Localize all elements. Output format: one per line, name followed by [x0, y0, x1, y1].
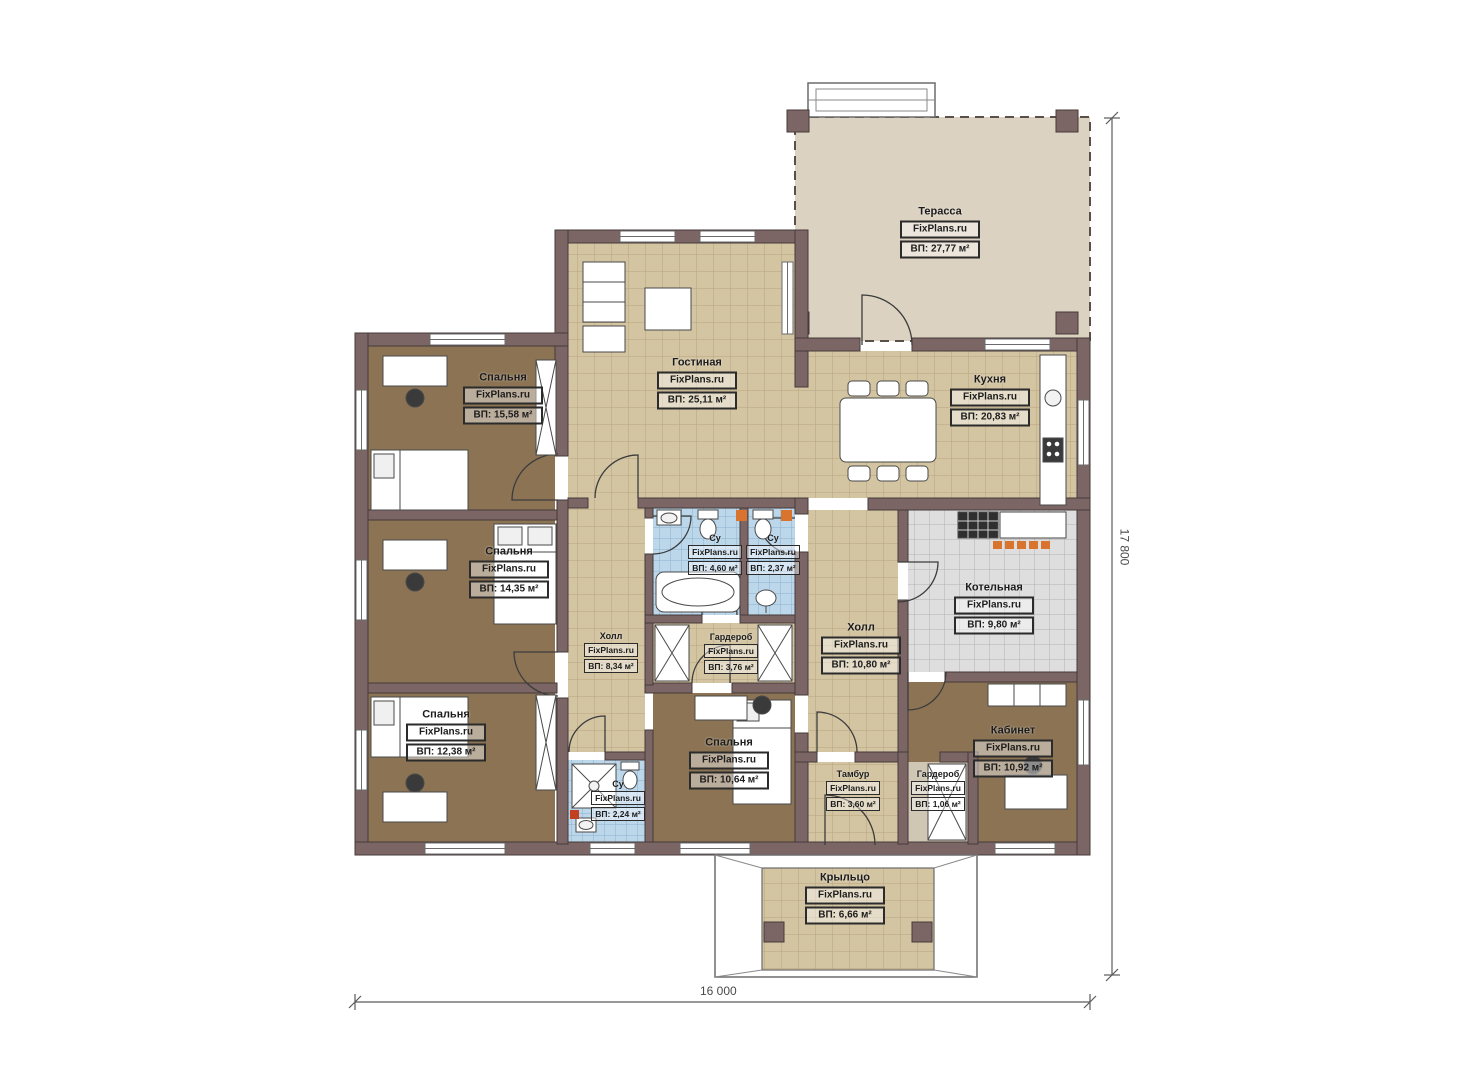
room-area: ВП: 14,35 м² [469, 581, 549, 599]
towel-heater [781, 510, 792, 521]
watermark-label: FixPlans.ru [704, 644, 758, 658]
room-label-terrace: Терасса FixPlans.ru ВП: 27,77 м² [900, 206, 980, 259]
balcony-door [782, 262, 793, 334]
window [995, 843, 1055, 854]
bathtub [656, 572, 740, 612]
room-name: Кабинет [991, 725, 1036, 738]
room-area: ВП: 25,11 м² [657, 392, 737, 410]
room-area: ВП: 4,60 м² [688, 561, 742, 575]
tv-unit [583, 262, 625, 352]
room-area: ВП: 9,80 м² [954, 617, 1034, 635]
room-label-tambour: Тамбур FixPlans.ru ВП: 3,60 м² [826, 769, 880, 811]
watermark-label: FixPlans.ru [826, 781, 880, 795]
watermark-label: FixPlans.ru [973, 740, 1053, 758]
room-label-bathroom-3: Су FixPlans.ru ВП: 2,24 м² [591, 779, 645, 821]
office-shelf [988, 684, 1066, 706]
watermark-label: FixPlans.ru [469, 561, 549, 579]
room-label-office: Кабинет FixPlans.ru ВП: 10,92 м² [973, 725, 1053, 778]
watermark-label: FixPlans.ru [911, 781, 965, 795]
window [985, 339, 1050, 350]
room-label-bathroom-2: Су FixPlans.ru ВП: 2,37 м² [746, 533, 800, 575]
terrace-post [1056, 110, 1078, 132]
room-area: ВП: 8,34 м² [584, 659, 638, 673]
floor-passage [795, 385, 808, 498]
room-name: Спальня [422, 709, 470, 722]
wardrobe [536, 695, 556, 790]
floor-hall-1 [568, 498, 645, 752]
room-area: ВП: 10,64 м² [689, 772, 769, 790]
room-name: Котельная [965, 582, 1023, 595]
window [680, 843, 750, 854]
dimension-height-label: 17 800 [1117, 529, 1131, 566]
room-label-hall-1: Холл FixPlans.ru ВП: 8,34 м² [584, 631, 638, 673]
dining-table [840, 381, 936, 481]
watermark-label: FixPlans.ru [584, 643, 638, 657]
watermark-label: FixPlans.ru [406, 724, 486, 742]
room-name: Су [612, 779, 624, 789]
watermark-label: FixPlans.ru [463, 387, 543, 405]
room-name: Спальня [479, 372, 527, 385]
room-name: Холл [847, 622, 875, 635]
room-area: ВП: 27,77 м² [900, 241, 980, 259]
room-area: ВП: 20,83 м² [950, 409, 1030, 427]
window [356, 390, 367, 450]
room-label-kitchen: Кухня FixPlans.ru ВП: 20,83 м² [950, 374, 1030, 427]
room-name: Су [767, 533, 779, 543]
room-label-wardrobe-1: Гардероб FixPlans.ru ВП: 3,76 м² [704, 632, 758, 674]
window [620, 231, 675, 242]
watermark-label: FixPlans.ru [591, 791, 645, 805]
wardrobe [758, 625, 792, 681]
sink [657, 510, 681, 525]
room-name: Кухня [974, 374, 1006, 387]
porch-post [764, 922, 784, 942]
porch-post [912, 922, 932, 942]
room-label-bedroom-4: Спальня FixPlans.ru ВП: 10,64 м² [689, 737, 769, 790]
room-label-bathroom-1: Су FixPlans.ru ВП: 4,60 м² [688, 533, 742, 575]
kitchen-counter [1040, 355, 1066, 505]
room-area: ВП: 3,76 м² [704, 660, 758, 674]
watermark-label: FixPlans.ru [746, 545, 800, 559]
room-label-hall-2: Холл FixPlans.ru ВП: 10,80 м² [821, 622, 901, 675]
room-label-livingroom: Гостиная FixPlans.ru ВП: 25,11 м² [657, 357, 737, 410]
terrace-post [1056, 312, 1078, 334]
window [1078, 700, 1089, 765]
window [430, 334, 505, 345]
window [425, 843, 505, 854]
room-label-bedroom-1: Спальня FixPlans.ru ВП: 15,58 м² [463, 372, 543, 425]
coffee-table [645, 288, 691, 330]
watermark-label: FixPlans.ru [689, 752, 769, 770]
window [590, 843, 635, 854]
room-name: Холл [600, 631, 623, 641]
room-name: Су [709, 533, 721, 543]
room-area: ВП: 15,58 м² [463, 407, 543, 425]
wardrobe [655, 625, 689, 681]
bed [371, 450, 468, 510]
watermark-label: FixPlans.ru [950, 389, 1030, 407]
room-label-bedroom-2: Спальня FixPlans.ru ВП: 14,35 м² [469, 546, 549, 599]
towel-heater [570, 810, 579, 819]
room-name: Спальня [705, 737, 753, 750]
window [356, 730, 367, 790]
room-name: Гардероб [917, 769, 960, 779]
towel-heater [736, 510, 747, 521]
watermark-label: FixPlans.ru [805, 887, 885, 905]
room-area: ВП: 6,66 м² [805, 907, 885, 925]
dimension-width-label: 16 000 [700, 984, 737, 998]
terrace-steps [808, 83, 935, 117]
room-label-bedroom-3: Спальня FixPlans.ru ВП: 12,38 м² [406, 709, 486, 762]
room-name: Спальня [485, 546, 533, 559]
window [700, 231, 755, 242]
room-area: ВП: 10,92 м² [973, 760, 1053, 778]
room-area: ВП: 2,24 м² [591, 807, 645, 821]
floor-plan-page: Терасса FixPlans.ru ВП: 27,77 м² Гостина… [0, 0, 1473, 1080]
watermark-label: FixPlans.ru [954, 597, 1034, 615]
room-area: ВП: 3,60 м² [826, 797, 880, 811]
room-area: ВП: 12,38 м² [406, 744, 486, 762]
watermark-label: FixPlans.ru [821, 637, 901, 655]
room-area: ВП: 1,06 м² [911, 797, 965, 811]
watermark-label: FixPlans.ru [657, 372, 737, 390]
watermark-label: FixPlans.ru [688, 545, 742, 559]
room-name: Крыльцо [820, 872, 870, 885]
room-name: Терасса [918, 206, 962, 219]
watermark-label: FixPlans.ru [900, 221, 980, 239]
room-area: ВП: 10,80 м² [821, 657, 901, 675]
room-name: Тамбур [837, 769, 870, 779]
window [1078, 400, 1089, 465]
room-label-wardrobe-2: Гардероб FixPlans.ru ВП: 1,06 м² [911, 769, 965, 811]
room-area: ВП: 2,37 м² [746, 561, 800, 575]
terrace-post [787, 110, 809, 132]
room-label-boiler: Котельная FixPlans.ru ВП: 9,80 м² [954, 582, 1034, 635]
room-label-porch: Крыльцо FixPlans.ru ВП: 6,66 м² [805, 872, 885, 925]
window [356, 560, 367, 620]
room-name: Гардероб [710, 632, 753, 642]
room-name: Гостиная [672, 357, 722, 370]
